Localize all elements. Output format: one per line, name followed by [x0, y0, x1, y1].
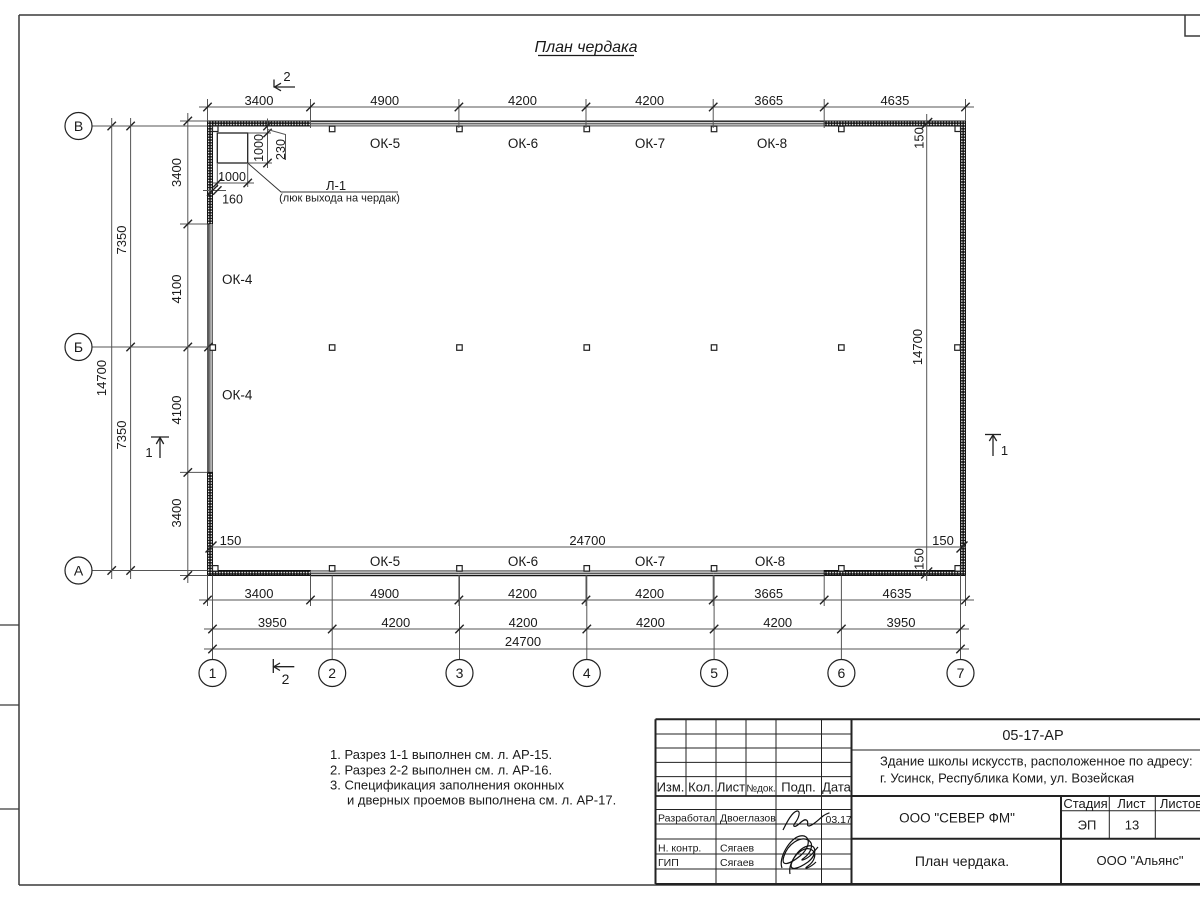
svg-text:24700: 24700: [505, 634, 541, 649]
svg-text:3400: 3400: [245, 586, 274, 601]
svg-text:7350: 7350: [114, 226, 129, 255]
svg-text:24700: 24700: [569, 533, 605, 548]
svg-text:4100: 4100: [169, 275, 184, 304]
svg-text:4900: 4900: [370, 586, 399, 601]
svg-text:3400: 3400: [169, 499, 184, 528]
svg-text:Кол.: Кол.: [688, 780, 714, 795]
svg-text:ОК-6: ОК-6: [508, 554, 538, 569]
svg-text:№док.: №док.: [746, 784, 775, 795]
svg-text:Изм.: Изм.: [657, 780, 685, 795]
svg-text:1000: 1000: [218, 170, 246, 184]
svg-text:Стадия: Стадия: [1063, 796, 1107, 811]
svg-text:6: 6: [838, 665, 846, 681]
svg-text:ОК-8: ОК-8: [755, 554, 785, 569]
svg-text:3665: 3665: [754, 93, 783, 108]
svg-text:Н. контр.: Н. контр.: [658, 843, 701, 855]
svg-text:Подп.: Подп.: [781, 780, 816, 795]
svg-text:ОК-4: ОК-4: [222, 388, 253, 403]
svg-text:(люк выхода на чердак): (люк выхода на чердак): [279, 193, 400, 205]
svg-text:4900: 4900: [370, 93, 399, 108]
svg-text:ЭП: ЭП: [1078, 818, 1097, 833]
svg-text:4200: 4200: [763, 615, 792, 630]
svg-text:и дверных проемов выполнена см: и дверных проемов выполнена см. л. АР-17…: [347, 793, 616, 808]
svg-text:3400: 3400: [245, 93, 274, 108]
svg-text:14700: 14700: [910, 329, 925, 365]
svg-text:4200: 4200: [508, 93, 537, 108]
svg-text:ОК-7: ОК-7: [635, 136, 665, 151]
svg-text:В: В: [74, 118, 83, 134]
svg-text:Здание школы искусств, располо: Здание школы искусств, расположенное по …: [880, 754, 1193, 769]
svg-text:4635: 4635: [880, 93, 909, 108]
svg-text:1: 1: [145, 445, 152, 460]
svg-text:2. Разрез 2-2 выполнен см. л.: 2. Разрез 2-2 выполнен см. л. АР-16.: [330, 763, 552, 778]
svg-text:ОК-7: ОК-7: [635, 554, 665, 569]
svg-text:14700: 14700: [94, 360, 109, 396]
svg-text:Дата: Дата: [822, 780, 852, 795]
svg-text:А: А: [74, 563, 84, 579]
svg-text:3: 3: [456, 665, 464, 681]
svg-text:150: 150: [912, 548, 927, 570]
svg-text:3950: 3950: [887, 615, 916, 630]
svg-text:150: 150: [912, 127, 927, 149]
svg-text:4200: 4200: [509, 615, 538, 630]
svg-text:4200: 4200: [636, 615, 665, 630]
svg-text:ООО "Альянс": ООО "Альянс": [1097, 853, 1184, 868]
svg-text:4200: 4200: [508, 586, 537, 601]
svg-text:3950: 3950: [258, 615, 287, 630]
svg-text:3. Спецификация заполнения око: 3. Спецификация заполнения оконных: [330, 778, 565, 793]
svg-text:13: 13: [1125, 818, 1139, 833]
svg-text:Листов: Листов: [1160, 796, 1200, 811]
svg-text:Б: Б: [74, 339, 83, 355]
svg-text:4635: 4635: [883, 586, 912, 601]
svg-text:ОК-8: ОК-8: [757, 136, 787, 151]
svg-text:4: 4: [583, 665, 591, 681]
svg-text:Сягаев: Сягаев: [720, 857, 755, 869]
svg-text:1000: 1000: [252, 134, 266, 162]
svg-text:03.17: 03.17: [826, 814, 852, 826]
svg-text:Двоеглазов: Двоеглазов: [720, 813, 776, 825]
svg-text:Сягаев: Сягаев: [720, 843, 755, 855]
svg-text:ООО "СЕВЕР ФМ": ООО "СЕВЕР ФМ": [899, 811, 1015, 826]
svg-text:150: 150: [932, 533, 954, 548]
svg-text:4100: 4100: [169, 396, 184, 425]
svg-text:3665: 3665: [754, 586, 783, 601]
svg-text:1. Разрез 1-1 выполнен см. л.: 1. Разрез 1-1 выполнен см. л. АР-15.: [330, 747, 552, 762]
svg-text:2: 2: [283, 69, 290, 84]
svg-text:1: 1: [209, 665, 217, 681]
svg-text:Лист: Лист: [1117, 796, 1145, 811]
svg-text:7350: 7350: [114, 421, 129, 450]
svg-text:ОК-4: ОК-4: [222, 272, 253, 287]
svg-text:3400: 3400: [169, 158, 184, 187]
svg-text:ОК-6: ОК-6: [508, 136, 538, 151]
svg-text:Лист: Лист: [717, 780, 745, 795]
svg-text:План чердака.: План чердака.: [915, 853, 1009, 869]
svg-text:ОК-5: ОК-5: [370, 136, 400, 151]
svg-text:4200: 4200: [381, 615, 410, 630]
svg-text:5: 5: [710, 665, 718, 681]
svg-text:4200: 4200: [635, 586, 664, 601]
svg-text:7: 7: [957, 665, 965, 681]
svg-text:230: 230: [274, 139, 288, 160]
svg-text:2: 2: [328, 665, 336, 681]
svg-text:Разработал: Разработал: [658, 813, 715, 825]
svg-text:Л-1: Л-1: [326, 178, 346, 193]
svg-text:2: 2: [282, 671, 290, 687]
svg-text:ГИП: ГИП: [658, 857, 679, 869]
svg-text:160: 160: [222, 193, 243, 207]
svg-text:150: 150: [220, 533, 242, 548]
svg-text:4200: 4200: [635, 93, 664, 108]
svg-text:г. Усинск, Республика Коми, ул: г. Усинск, Республика Коми, ул. Возейска…: [880, 771, 1134, 786]
svg-text:05-17-АР: 05-17-АР: [1002, 728, 1063, 744]
svg-text:1: 1: [1001, 443, 1008, 458]
svg-text:План чердака: План чердака: [534, 39, 637, 56]
svg-text:ОК-5: ОК-5: [370, 554, 400, 569]
